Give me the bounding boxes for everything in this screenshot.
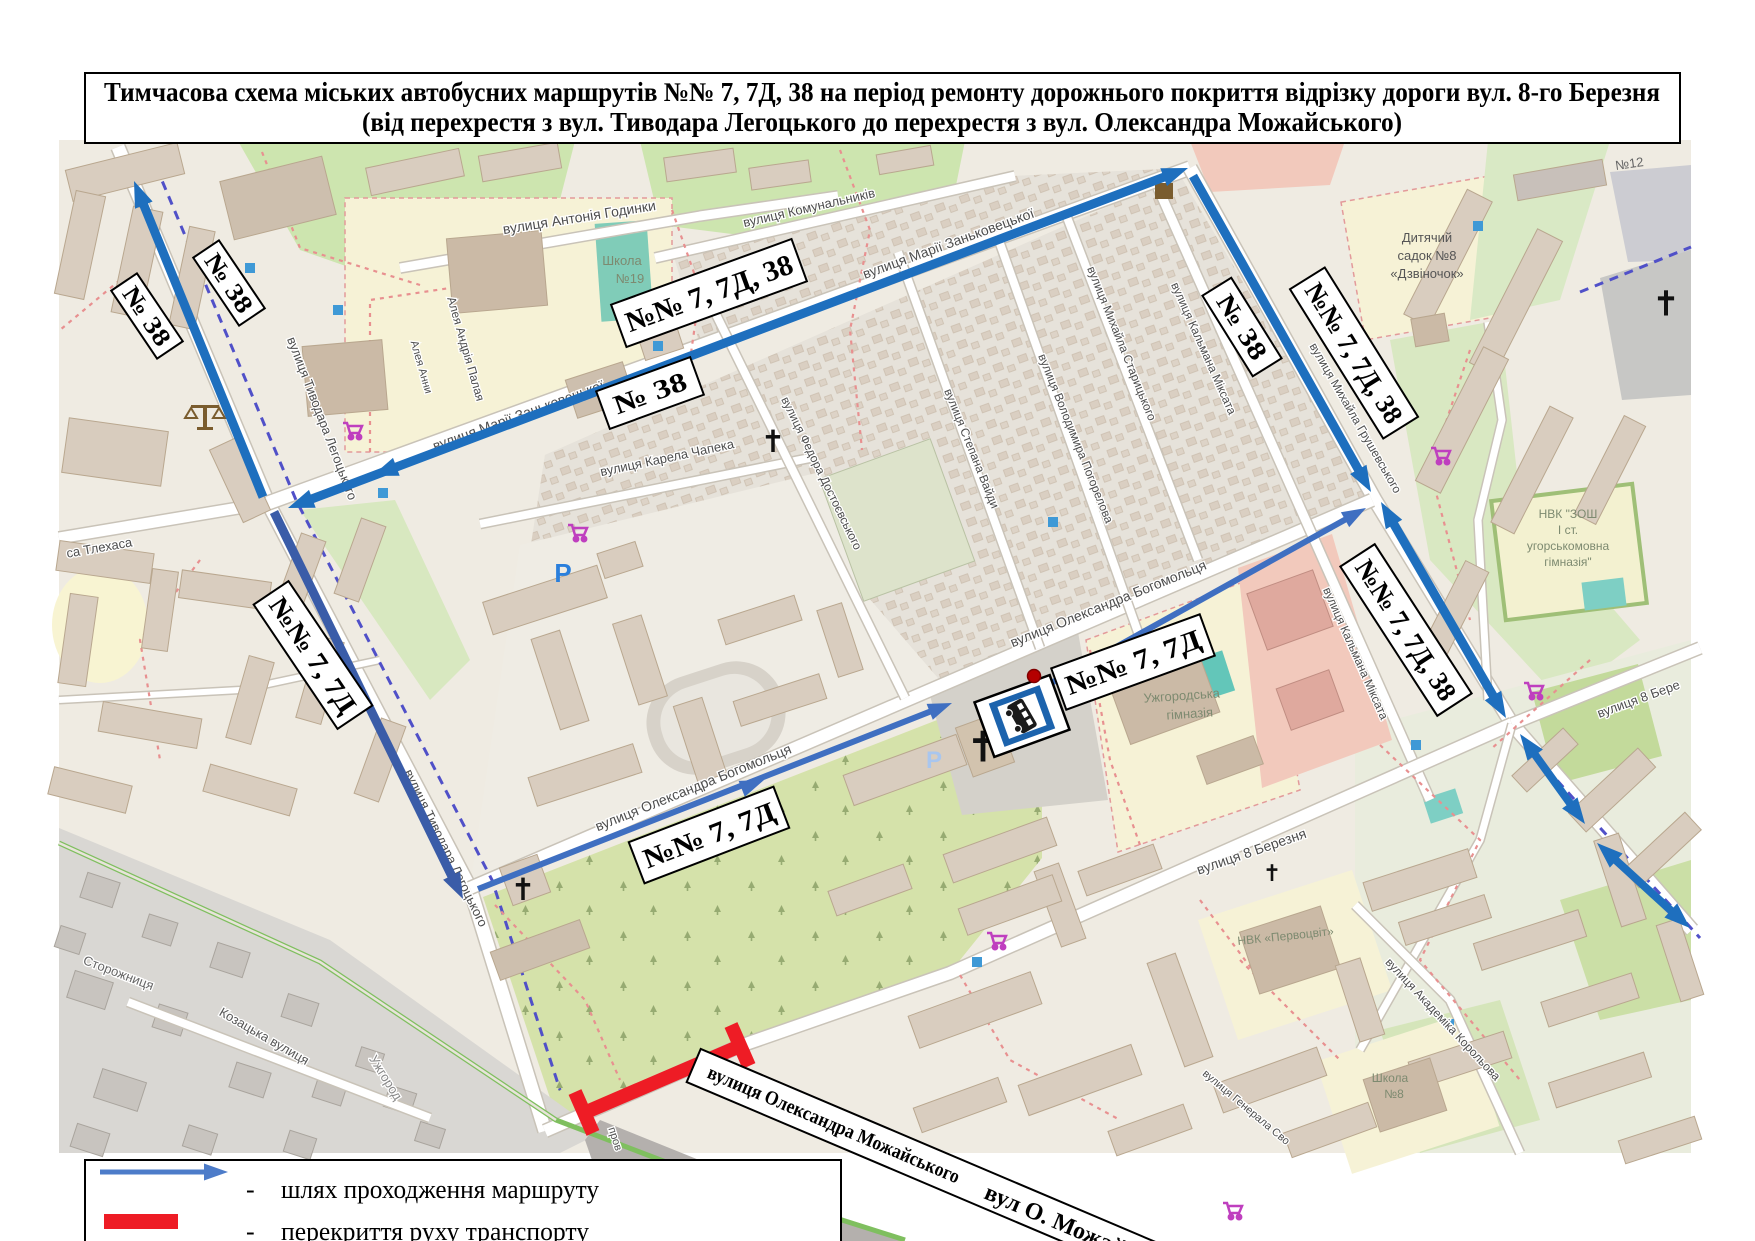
svg-text:-: -: [246, 1175, 255, 1204]
svg-text:Тимчасова схема міських автобу: Тимчасова схема міських автобусних маршр…: [104, 77, 1660, 107]
svg-text:Дитячий: Дитячий: [1402, 230, 1452, 245]
svg-text:«Дзвіночок»: «Дзвіночок»: [1390, 266, 1463, 281]
svg-text:НВК "ЗОШ: НВК "ЗОШ: [1539, 507, 1598, 521]
svg-text:Школа: Школа: [602, 253, 642, 268]
svg-text:№8: №8: [1384, 1087, 1404, 1101]
svg-text:P: P: [554, 558, 571, 588]
svg-text:Школа: Школа: [1372, 1071, 1409, 1085]
svg-text:вул О. Можайського: вул О. Можайського: [981, 1180, 1195, 1241]
svg-text:гімназія": гімназія": [1544, 555, 1591, 569]
svg-text:перекриття руху транспорту: перекриття руху транспорту: [281, 1217, 589, 1241]
svg-text:угорськомовна: угорськомовна: [1527, 539, 1610, 553]
svg-text:-: -: [246, 1217, 255, 1241]
svg-text:P: P: [926, 747, 942, 774]
svg-text:садок №8: садок №8: [1397, 248, 1456, 263]
svg-text:(від перехрестя з вул. Тиводар: (від перехрестя з вул. Тиводара Легоцько…: [362, 107, 1402, 137]
svg-text:№19: №19: [616, 271, 644, 286]
svg-text:шлях проходження маршруту: шлях проходження маршруту: [281, 1175, 599, 1204]
svg-text:І ст.: І ст.: [1558, 523, 1578, 537]
